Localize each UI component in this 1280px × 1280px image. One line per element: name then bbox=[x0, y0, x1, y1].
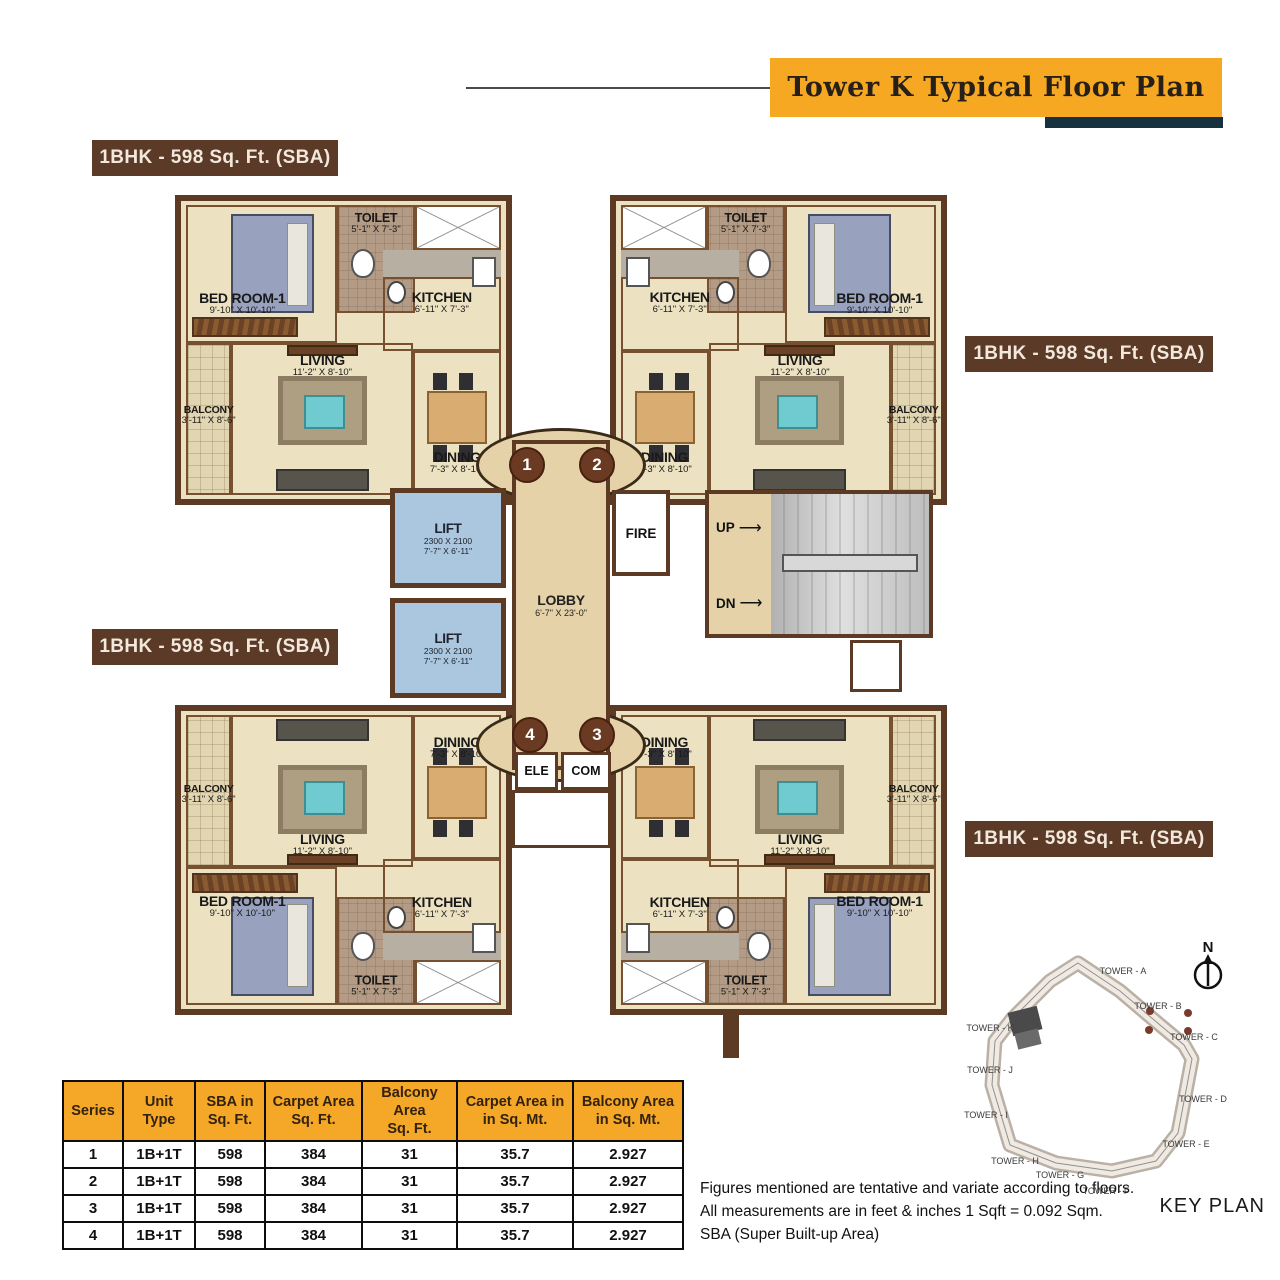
kitchen-dims: 6'-11" X 7'-3" bbox=[385, 305, 500, 316]
kitchen-label: KITCHEN bbox=[385, 289, 500, 305]
page-title: Tower K Typical Floor Plan bbox=[770, 58, 1222, 117]
fire-label: FIRE bbox=[626, 526, 657, 541]
unit-2: BED ROOM-19'-10" X 10'-10" TOILET5'-1" X… bbox=[610, 195, 947, 505]
col-sba: SBA inSq. Ft. bbox=[195, 1081, 265, 1141]
bedroom-label: BED ROOM-1 bbox=[825, 893, 934, 909]
lobby-label: LOBBY bbox=[537, 592, 585, 608]
unit-type-label-top-left: 1BHK - 598 Sq. Ft. (SBA) bbox=[92, 140, 338, 176]
cell: 3 bbox=[63, 1195, 123, 1222]
duct-shaft bbox=[415, 960, 501, 1005]
kitchen-dims: 6'-11" X 7'-3" bbox=[385, 910, 500, 921]
duct-shaft bbox=[415, 205, 501, 250]
toilet-label: TOILET bbox=[702, 211, 791, 225]
cell: 35.7 bbox=[457, 1141, 573, 1168]
cell: 2.927 bbox=[573, 1195, 683, 1222]
unit-4: BED ROOM-19'-10" X 10'-10" TOILET5'-1" X… bbox=[175, 705, 512, 1015]
sofa-graphic bbox=[276, 719, 369, 741]
living-label: LIVING bbox=[233, 831, 411, 847]
sofa-graphic bbox=[276, 469, 369, 491]
duct-shaft bbox=[621, 205, 707, 250]
kitchen-label: KITCHEN bbox=[385, 894, 500, 910]
rug-graphic bbox=[755, 765, 844, 835]
balcony-label: BALCONY bbox=[173, 404, 244, 416]
cell: 4 bbox=[63, 1222, 123, 1249]
chairs-graphic bbox=[640, 373, 689, 390]
unit-1-kitchen: KITCHEN6'-11" X 7'-3" bbox=[383, 250, 502, 351]
cell: 1B+1T bbox=[123, 1168, 195, 1195]
unit-3-kitchen: KITCHEN6'-11" X 7'-3" bbox=[621, 859, 740, 960]
unit-1-living: LIVING11'-2" X 8'-10" bbox=[231, 343, 413, 495]
tower-i-label: TOWER - I bbox=[964, 1110, 1008, 1120]
toilet-dims: 5'-1" X 7'-3" bbox=[332, 989, 421, 1000]
fire-shaft: FIRE bbox=[612, 490, 670, 576]
tower-a-label: TOWER - A bbox=[1100, 966, 1147, 976]
toilet-wc-graphic bbox=[351, 249, 375, 278]
cell: 598 bbox=[195, 1195, 265, 1222]
sofa-graphic bbox=[753, 719, 846, 741]
rug-graphic bbox=[278, 376, 367, 446]
bedroom-dims: 9'-10" X 10'-10" bbox=[188, 306, 297, 317]
unit-3: BED ROOM-19'-10" X 10'-10" TOILET5'-1" X… bbox=[610, 705, 947, 1015]
cell: 2 bbox=[63, 1168, 123, 1195]
kitchen-hob-graphic bbox=[472, 257, 496, 287]
tower-j-label: TOWER - J bbox=[967, 1065, 1013, 1075]
unit-4-balcony: BALCONY3'-11" X 8'-6" bbox=[186, 715, 232, 867]
key-plan: TOWER - A TOWER - B TOWER - C TOWER - D … bbox=[960, 933, 1272, 1238]
bedroom-label: BED ROOM-1 bbox=[825, 290, 934, 306]
cell: 1B+1T bbox=[123, 1195, 195, 1222]
dining-table-graphic bbox=[427, 766, 487, 819]
lobby-dims: 6'-7" X 23'-0" bbox=[535, 608, 587, 618]
lift-dims-mm: 2300 X 2100 bbox=[424, 536, 472, 546]
staircase: UP⟶ DN⟶ bbox=[705, 490, 933, 638]
unit-marker-3: 3 bbox=[579, 717, 615, 753]
unit-type-label-right-lower: 1BHK - 598 Sq. Ft. (SBA) bbox=[965, 821, 1213, 857]
lift-label: LIFT bbox=[434, 521, 461, 536]
bedroom-dims: 9'-10" X 10'-10" bbox=[825, 306, 934, 317]
title-rule-line bbox=[466, 87, 771, 89]
cell: 598 bbox=[195, 1168, 265, 1195]
living-dims: 11'-2" X 8'-10" bbox=[711, 368, 889, 379]
living-label: LIVING bbox=[711, 831, 889, 847]
stairs-down-label: DN bbox=[716, 596, 736, 611]
kitchen-label: KITCHEN bbox=[623, 289, 738, 305]
floor-plan: BED ROOM-19'-10" X 10'-10" TOILET5'-1" X… bbox=[170, 190, 960, 1035]
tower-h-label: TOWER - H bbox=[991, 1156, 1039, 1166]
ele-label: ELE bbox=[524, 764, 548, 778]
kitchen-hob-graphic bbox=[472, 923, 496, 953]
stairs-up-label: UP bbox=[716, 520, 735, 535]
lift-label: LIFT bbox=[434, 631, 461, 646]
kitchen-hob-graphic bbox=[626, 923, 650, 953]
toilet-wc-graphic bbox=[351, 932, 375, 961]
cell: 2.927 bbox=[573, 1222, 683, 1249]
toilet-wc-graphic bbox=[747, 932, 771, 961]
rug-graphic bbox=[278, 765, 367, 835]
area-table-container: Series UnitType SBA inSq. Ft. Carpet Are… bbox=[62, 1080, 684, 1250]
unit-1-balcony: BALCONY3'-11" X 8'-6" bbox=[186, 343, 232, 495]
unit-4-kitchen: KITCHEN6'-11" X 7'-3" bbox=[383, 859, 502, 960]
unit-marker-2: 2 bbox=[579, 447, 615, 483]
wardrobe-graphic bbox=[824, 873, 930, 893]
chairs-graphic bbox=[433, 820, 482, 837]
unit-3-living: LIVING11'-2" X 8'-10" bbox=[709, 715, 891, 867]
rug-graphic bbox=[755, 376, 844, 446]
living-label: LIVING bbox=[711, 352, 889, 368]
wall-stub bbox=[723, 1010, 739, 1058]
page-title-text: Tower K Typical Floor Plan bbox=[787, 72, 1204, 103]
unit-2-bedroom: BED ROOM-19'-10" X 10'-10" bbox=[785, 205, 936, 342]
communication-shaft: COM bbox=[561, 752, 611, 790]
cell: 35.7 bbox=[457, 1168, 573, 1195]
balcony-dims: 3'-11" X 8'-6" bbox=[878, 416, 949, 427]
kitchen-hob-graphic bbox=[626, 257, 650, 287]
duct-shaft bbox=[621, 960, 707, 1005]
living-dims: 11'-2" X 8'-10" bbox=[711, 847, 889, 858]
electrical-shaft: ELE bbox=[515, 752, 558, 790]
living-label: LIVING bbox=[233, 352, 411, 368]
cell: 31 bbox=[362, 1222, 457, 1249]
cell: 1B+1T bbox=[123, 1141, 195, 1168]
bedroom-dims: 9'-10" X 10'-10" bbox=[188, 910, 297, 921]
unit-2-living: LIVING11'-2" X 8'-10" bbox=[709, 343, 891, 495]
right-arrow-icon: ⟶ bbox=[740, 593, 761, 613]
unit-2-kitchen: KITCHEN6'-11" X 7'-3" bbox=[621, 250, 740, 351]
toilet-dims: 5'-1" X 7'-3" bbox=[702, 989, 791, 1000]
cell: 35.7 bbox=[457, 1195, 573, 1222]
north-arrow-icon bbox=[1195, 954, 1221, 988]
com-label: COM bbox=[571, 764, 600, 778]
cell: 1B+1T bbox=[123, 1222, 195, 1249]
lift-2: LIFT 2300 X 2100 7'-7" X 6'-11" bbox=[390, 598, 506, 698]
col-carpet-sqmt: Carpet Area inin Sq. Mt. bbox=[457, 1081, 573, 1141]
tower-d-label: TOWER - D bbox=[1179, 1094, 1227, 1104]
bedroom-label: BED ROOM-1 bbox=[188, 290, 297, 306]
cell: 384 bbox=[265, 1168, 362, 1195]
cell: 31 bbox=[362, 1141, 457, 1168]
unit-2-balcony: BALCONY3'-11" X 8'-6" bbox=[891, 343, 937, 495]
table-header-row: Series UnitType SBA inSq. Ft. Carpet Are… bbox=[63, 1081, 683, 1141]
col-series: Series bbox=[63, 1081, 123, 1141]
chairs-graphic bbox=[640, 820, 689, 837]
lift-dims-ft: 7'-7" X 6'-11" bbox=[424, 656, 472, 666]
table-row: 31B+1T5983843135.72.927 bbox=[63, 1195, 683, 1222]
balcony-dims: 3'-11" X 8'-6" bbox=[173, 416, 244, 427]
tower-k-label: TOWER - K bbox=[966, 1023, 1013, 1033]
cell: 2.927 bbox=[573, 1168, 683, 1195]
cell: 598 bbox=[195, 1141, 265, 1168]
unit-type-label-right-upper: 1BHK - 598 Sq. Ft. (SBA) bbox=[965, 336, 1213, 372]
table-row: 11B+1T5983843135.72.927 bbox=[63, 1141, 683, 1168]
wardrobe-graphic bbox=[192, 873, 298, 893]
col-unit-type: UnitType bbox=[123, 1081, 195, 1141]
cell: 384 bbox=[265, 1222, 362, 1249]
title-accent-bar bbox=[1045, 117, 1223, 128]
toilet-dims: 5'-1" X 7'-3" bbox=[332, 225, 421, 236]
toilet-wc-graphic bbox=[747, 249, 771, 278]
right-arrow-icon: ⟶ bbox=[739, 518, 760, 538]
unit-3-balcony: BALCONY3'-11" X 8'-6" bbox=[891, 715, 937, 867]
balcony-dims: 3'-11" X 8'-6" bbox=[173, 795, 244, 806]
tower-g-label: TOWER - G bbox=[1036, 1170, 1084, 1180]
floor-plan-page: Tower K Typical Floor Plan 1BHK - 598 Sq… bbox=[0, 0, 1280, 1280]
unit-marker-4: 4 bbox=[512, 717, 548, 753]
kitchen-dims: 6'-11" X 7'-3" bbox=[623, 910, 738, 921]
kitchen-label: KITCHEN bbox=[623, 894, 738, 910]
kitchen-dims: 6'-11" X 7'-3" bbox=[623, 305, 738, 316]
tower-e-label: TOWER - E bbox=[1162, 1139, 1209, 1149]
duct-shaft bbox=[850, 640, 902, 692]
living-dims: 11'-2" X 8'-10" bbox=[233, 368, 411, 379]
lift-dims-mm: 2300 X 2100 bbox=[424, 646, 472, 656]
table-row: 41B+1T5983843135.72.927 bbox=[63, 1222, 683, 1249]
dining-table-graphic bbox=[427, 391, 487, 444]
cell: 384 bbox=[265, 1195, 362, 1222]
unit-1-bedroom: BED ROOM-19'-10" X 10'-10" bbox=[186, 205, 337, 342]
cell: 31 bbox=[362, 1168, 457, 1195]
area-table: Series UnitType SBA inSq. Ft. Carpet Are… bbox=[62, 1080, 684, 1250]
living-dims: 11'-2" X 8'-10" bbox=[233, 847, 411, 858]
wardrobe-graphic bbox=[824, 317, 930, 337]
bedroom-label: BED ROOM-1 bbox=[188, 893, 297, 909]
key-plan-title: KEY PLAN bbox=[1115, 1195, 1265, 1218]
tower-c-label: TOWER - C bbox=[1170, 1032, 1218, 1042]
balcony-dims: 3'-11" X 8'-6" bbox=[878, 795, 949, 806]
col-balcony-sqft: Balcony AreaSq. Ft. bbox=[362, 1081, 457, 1141]
wardrobe-graphic bbox=[192, 317, 298, 337]
cell: 31 bbox=[362, 1195, 457, 1222]
cell: 2.927 bbox=[573, 1141, 683, 1168]
sofa-graphic bbox=[753, 469, 846, 491]
dining-table-graphic bbox=[635, 391, 695, 444]
toilet-dims: 5'-1" X 7'-3" bbox=[702, 225, 791, 236]
lift-1: LIFT 2300 X 2100 7'-7" X 6'-11" bbox=[390, 488, 506, 588]
north-label: N bbox=[1203, 939, 1214, 956]
cell: 35.7 bbox=[457, 1222, 573, 1249]
cell: 1 bbox=[63, 1141, 123, 1168]
lift-dims-ft: 7'-7" X 6'-11" bbox=[424, 546, 472, 556]
dining-table-graphic bbox=[635, 766, 695, 819]
bedroom-dims: 9'-10" X 10'-10" bbox=[825, 910, 934, 921]
chairs-graphic bbox=[433, 373, 482, 390]
tower-b-label: TOWER - B bbox=[1134, 1001, 1181, 1011]
unit-4-bedroom: BED ROOM-19'-10" X 10'-10" bbox=[186, 867, 337, 1004]
cell: 384 bbox=[265, 1141, 362, 1168]
unit-marker-1: 1 bbox=[509, 447, 545, 483]
unit-1: BED ROOM-19'-10" X 10'-10" TOILET5'-1" X… bbox=[175, 195, 512, 505]
col-carpet-sqft: Carpet AreaSq. Ft. bbox=[265, 1081, 362, 1141]
service-shaft bbox=[512, 790, 611, 848]
stair-handrail-graphic bbox=[782, 554, 918, 572]
unit-4-living: LIVING11'-2" X 8'-10" bbox=[231, 715, 413, 867]
toilet-label: TOILET bbox=[332, 211, 421, 225]
cell: 598 bbox=[195, 1222, 265, 1249]
table-row: 21B+1T5983843135.72.927 bbox=[63, 1168, 683, 1195]
col-balcony-sqmt: Balcony Areain Sq. Mt. bbox=[573, 1081, 683, 1141]
unit-3-bedroom: BED ROOM-19'-10" X 10'-10" bbox=[785, 867, 936, 1004]
